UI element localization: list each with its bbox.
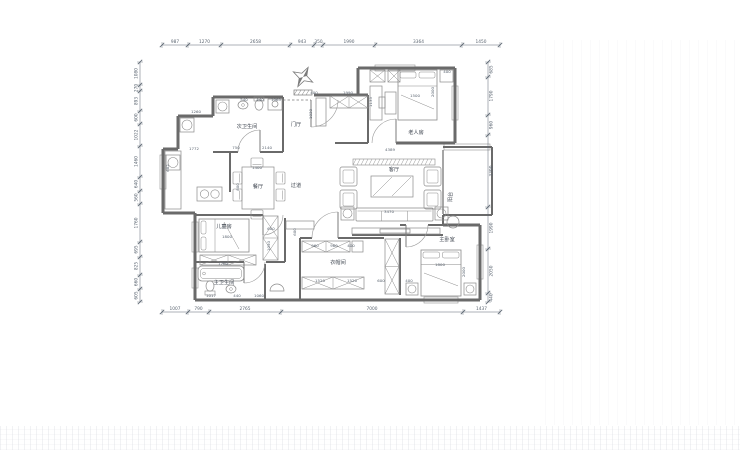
furniture-hall-cabinet [286, 221, 314, 229]
watermark-artifact [545, 40, 740, 425]
svg-text:440: 440 [233, 293, 241, 298]
furniture-kitchen-counter [165, 151, 181, 209]
svg-text:2658: 2658 [250, 39, 261, 45]
room-label-dining: 餐厅 [253, 182, 263, 190]
room-label-foyer: 门厅 [291, 120, 301, 128]
labels-layer: 次卫生间门厅老人房餐厅过道客厅儿童房主卫生间衣帽间主卧室阳台 [214, 120, 455, 286]
svg-text:600: 600 [292, 228, 297, 236]
svg-text:600: 600 [267, 226, 275, 231]
screenshot-root: 次卫生间门厅老人房餐厅过道客厅儿童房主卫生间衣帽间主卧室阳台1260540440… [0, 0, 740, 450]
svg-text:2140: 2140 [262, 145, 272, 150]
windows-layer [160, 65, 490, 303]
svg-text:1760: 1760 [134, 217, 140, 228]
furniture-feature-wall [353, 159, 435, 165]
svg-text:750: 750 [232, 145, 240, 150]
furniture-tall-wardrobe [385, 239, 399, 294]
furniture-master-bed [421, 250, 461, 296]
furniture-closet-shelf [302, 241, 350, 252]
svg-text:960: 960 [330, 243, 338, 248]
svg-text:400: 400 [405, 278, 413, 283]
furniture-chair [276, 189, 285, 201]
furniture-armchair [340, 167, 357, 186]
svg-text:1990: 1990 [489, 222, 495, 233]
furniture-stove [197, 187, 222, 201]
svg-text:943: 943 [298, 39, 306, 45]
svg-text:1017: 1017 [206, 293, 216, 298]
svg-text:1400: 1400 [252, 165, 262, 170]
room-label-master-bedroom: 主卧室 [439, 235, 455, 243]
svg-text:960: 960 [311, 243, 319, 248]
furniture-bathtub [198, 266, 244, 281]
svg-text:685: 685 [489, 65, 495, 73]
furniture-nightstand [406, 283, 418, 295]
svg-text:1800: 1800 [222, 234, 232, 239]
svg-text:600: 600 [134, 113, 140, 121]
svg-text:400: 400 [310, 90, 318, 95]
furniture-sofa [356, 208, 433, 221]
svg-text:3470: 3470 [384, 209, 394, 214]
svg-text:400: 400 [443, 69, 451, 74]
furniture-sink [238, 101, 248, 109]
svg-text:1260: 1260 [191, 109, 201, 114]
watermark-artifact [0, 426, 740, 450]
svg-text:695: 695 [134, 245, 140, 253]
svg-text:1520: 1520 [347, 278, 357, 283]
svg-text:682: 682 [165, 164, 170, 172]
furniture-desk [385, 92, 396, 114]
svg-text:1022: 1022 [134, 129, 140, 140]
svg-text:660: 660 [134, 278, 140, 286]
svg-text:1270: 1270 [199, 39, 210, 45]
furniture-laundry-box [180, 118, 194, 132]
dimensions-layer: 9871270265894335019903364145010077902765… [134, 39, 503, 315]
furniture-entry-closet [330, 96, 368, 108]
svg-text:2765: 2765 [240, 306, 251, 312]
svg-text:270: 270 [134, 84, 140, 92]
svg-text:7000: 7000 [367, 306, 378, 312]
room-label-children-room: 儿童房 [216, 222, 232, 230]
svg-text:1050: 1050 [266, 241, 271, 251]
svg-text:605: 605 [134, 291, 140, 299]
furniture-chair [276, 172, 285, 184]
furniture-low-cabinet [200, 255, 256, 265]
furniture-sink [226, 285, 236, 293]
svg-text:1450: 1450 [476, 39, 487, 45]
svg-text:893: 893 [134, 97, 140, 105]
svg-text:4389: 4389 [385, 147, 395, 152]
furniture-nightstand [464, 283, 476, 295]
furniture-armchair [340, 190, 357, 209]
room-label-cloakroom: 衣帽间 [330, 258, 346, 266]
svg-text:1520: 1520 [315, 278, 325, 283]
svg-text:3390: 3390 [489, 165, 495, 176]
furniture-coffee-table [371, 176, 413, 197]
svg-text:1772: 1772 [189, 146, 199, 151]
svg-text:1990: 1990 [344, 39, 355, 45]
svg-text:350: 350 [314, 39, 322, 45]
room-label-balcony: 阳台 [446, 192, 454, 202]
svg-text:1700: 1700 [218, 261, 228, 266]
room-label-second-bath: 次卫生间 [237, 122, 258, 130]
svg-text:1135: 1135 [368, 97, 373, 107]
room-label-corridor: 过道 [291, 181, 301, 189]
svg-text:440: 440 [256, 97, 264, 102]
furniture-cabinet [370, 70, 385, 82]
svg-text:825: 825 [134, 262, 140, 270]
svg-text:1460: 1460 [134, 156, 140, 167]
svg-text:440: 440 [489, 293, 495, 301]
svg-text:1030: 1030 [308, 109, 313, 119]
svg-text:960: 960 [489, 121, 495, 129]
svg-text:1060: 1060 [254, 293, 264, 298]
svg-text:987: 987 [171, 39, 179, 45]
svg-text:1437: 1437 [476, 306, 487, 312]
svg-text:1800: 1800 [435, 262, 445, 267]
room-label-master-bath: 主卫生间 [214, 278, 235, 286]
furniture-wardrobe [263, 216, 278, 260]
svg-text:2050: 2050 [489, 265, 495, 276]
room-label-elderly-room: 老人房 [408, 128, 424, 136]
svg-text:2000: 2000 [461, 267, 466, 277]
svg-text:800: 800 [235, 183, 240, 191]
furniture-basin [270, 284, 284, 291]
svg-text:640: 640 [134, 180, 140, 188]
room-label-living: 客厅 [389, 165, 399, 173]
svg-text:600: 600 [377, 278, 385, 283]
furniture-washing-machine [216, 100, 229, 113]
svg-text:1080: 1080 [134, 68, 140, 79]
furniture-shoe-cabinet [316, 98, 326, 126]
svg-text:2000: 2000 [430, 87, 435, 97]
svg-text:540: 540 [240, 97, 248, 102]
svg-text:1790: 1790 [489, 90, 495, 101]
furniture-armchair [424, 190, 441, 209]
furniture-armchair [424, 167, 441, 186]
svg-text:1065: 1065 [271, 97, 281, 102]
svg-text:400: 400 [347, 243, 355, 248]
svg-text:560: 560 [134, 193, 140, 201]
svg-text:790: 790 [194, 306, 202, 312]
svg-text:3364: 3364 [413, 39, 424, 45]
svg-text:1990: 1990 [343, 90, 353, 95]
furniture-chair [233, 172, 242, 184]
svg-text:1007: 1007 [170, 306, 181, 312]
svg-text:1500: 1500 [410, 93, 420, 98]
